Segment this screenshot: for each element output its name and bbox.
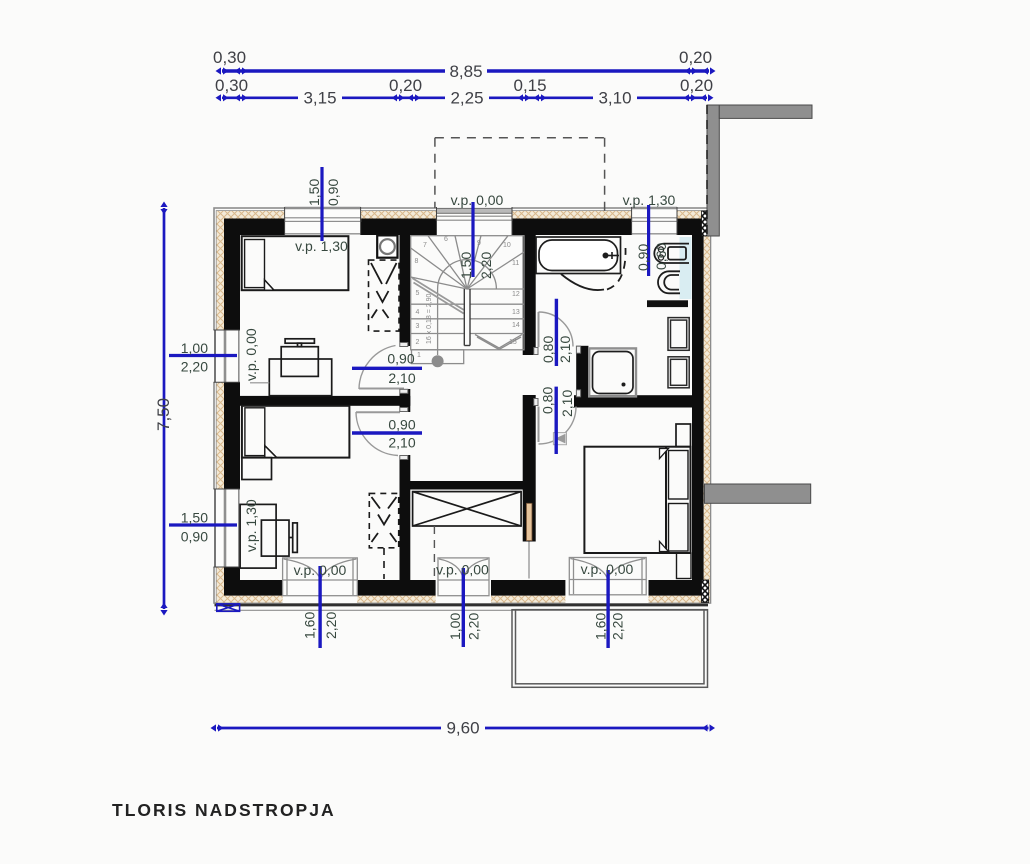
svg-text:15: 15 — [509, 339, 517, 346]
svg-text:v.p. 0,00: v.p. 0,00 — [294, 562, 347, 578]
svg-text:8: 8 — [415, 258, 419, 265]
svg-text:v.p. 1,30: v.p. 1,30 — [623, 192, 676, 208]
svg-text:0,90: 0,90 — [388, 417, 415, 433]
svg-text:0,80: 0,80 — [540, 387, 556, 414]
svg-text:10: 10 — [503, 242, 511, 249]
svg-text:v.p. 0,00: v.p. 0,00 — [581, 561, 634, 577]
svg-text:0,15: 0,15 — [514, 76, 547, 95]
svg-text:v.p. 1,30: v.p. 1,30 — [243, 499, 259, 552]
svg-text:0,30: 0,30 — [215, 76, 248, 95]
svg-text:v.p. 0,00: v.p. 0,00 — [436, 562, 489, 578]
svg-text:3,10: 3,10 — [598, 89, 631, 108]
svg-text:1,00: 1,00 — [447, 613, 463, 640]
svg-text:13: 13 — [512, 309, 520, 316]
svg-text:9,60: 9,60 — [446, 719, 479, 738]
svg-text:1,00: 1,00 — [181, 340, 208, 356]
svg-text:1,60: 1,60 — [302, 612, 318, 639]
svg-text:v.p. 1,30: v.p. 1,30 — [295, 238, 348, 254]
svg-text:2: 2 — [416, 339, 420, 346]
svg-text:2,10: 2,10 — [559, 390, 575, 417]
svg-text:12: 12 — [512, 291, 520, 298]
svg-text:0,20: 0,20 — [680, 76, 713, 95]
svg-text:3: 3 — [416, 323, 420, 330]
svg-text:5: 5 — [416, 290, 420, 297]
svg-text:0,20: 0,20 — [389, 76, 422, 95]
svg-text:11: 11 — [512, 260, 519, 267]
svg-text:0,90: 0,90 — [325, 179, 341, 206]
svg-text:0,60: 0,60 — [653, 243, 669, 270]
svg-text:1,50: 1,50 — [306, 179, 322, 206]
svg-text:14: 14 — [512, 322, 520, 329]
svg-text:1,50: 1,50 — [458, 252, 474, 279]
svg-text:2,20: 2,20 — [323, 612, 339, 639]
svg-text:7,50: 7,50 — [154, 398, 173, 431]
svg-text:2,10: 2,10 — [388, 435, 415, 451]
svg-text:1,50: 1,50 — [181, 510, 208, 526]
svg-text:2,10: 2,10 — [557, 336, 573, 363]
svg-text:9: 9 — [477, 240, 481, 247]
svg-text:0,90: 0,90 — [181, 529, 208, 545]
svg-text:TLORIS NADSTROPJA: TLORIS NADSTROPJA — [112, 800, 336, 820]
svg-text:8,85: 8,85 — [449, 62, 482, 81]
svg-text:2,20: 2,20 — [466, 613, 482, 640]
svg-text:0,80: 0,80 — [540, 336, 556, 363]
svg-text:0,20: 0,20 — [679, 48, 712, 67]
svg-text:1,60: 1,60 — [593, 613, 609, 640]
svg-text:v.p. 0,00: v.p. 0,00 — [243, 328, 259, 381]
svg-text:0,90: 0,90 — [387, 351, 414, 367]
svg-text:1: 1 — [417, 352, 421, 359]
svg-text:2,20: 2,20 — [478, 252, 494, 279]
svg-text:3,15: 3,15 — [303, 89, 336, 108]
svg-text:2,20: 2,20 — [610, 613, 626, 640]
svg-text:v.p. 0,00: v.p. 0,00 — [451, 192, 504, 208]
svg-text:0,30: 0,30 — [213, 48, 246, 67]
svg-text:6: 6 — [444, 236, 448, 243]
svg-text:16 x 0,18 = 2,90: 16 x 0,18 = 2,90 — [426, 293, 433, 344]
svg-text:0,90: 0,90 — [635, 244, 651, 271]
svg-text:2,20: 2,20 — [181, 359, 208, 375]
svg-text:7: 7 — [423, 242, 427, 249]
svg-text:4: 4 — [416, 309, 420, 316]
svg-text:2,25: 2,25 — [450, 89, 483, 108]
svg-text:2,10: 2,10 — [388, 370, 415, 386]
